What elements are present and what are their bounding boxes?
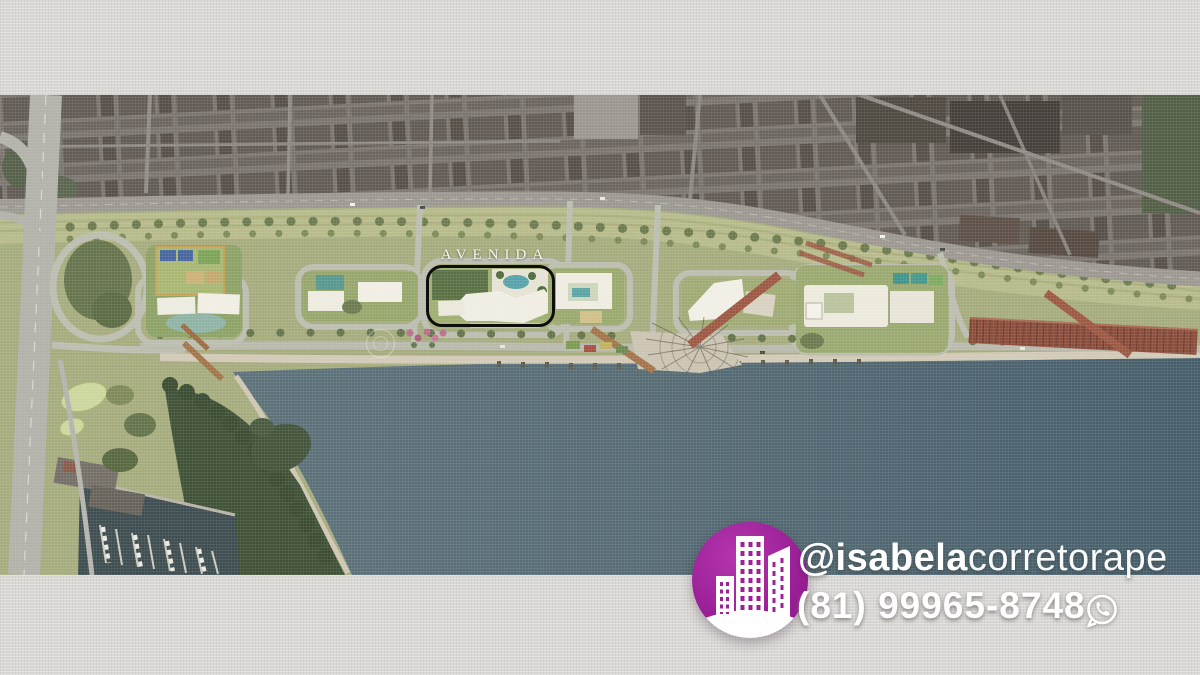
buildings-icon bbox=[692, 522, 808, 638]
aerial-map bbox=[0, 95, 1200, 575]
realtor-logo[interactable] bbox=[692, 522, 808, 638]
phone-number[interactable]: (81) 99965-8748 bbox=[797, 585, 1086, 627]
project-label: AVENIDA bbox=[420, 247, 570, 264]
building-cluster-east bbox=[796, 265, 948, 353]
site-highlight-outline bbox=[426, 265, 555, 327]
handle-bold-part: @isabela bbox=[798, 537, 968, 579]
watermark-logo bbox=[366, 329, 395, 358]
building-cluster-west bbox=[146, 245, 242, 349]
handle-light-part: corretorape bbox=[968, 537, 1168, 579]
aerial-photo bbox=[0, 95, 1200, 575]
building-cluster-midwest bbox=[302, 271, 418, 321]
marketing-image: AVENIDA @isabelacorretorape (81) 99965-8… bbox=[0, 0, 1200, 675]
building-cluster-center bbox=[548, 268, 624, 324]
instagram-handle[interactable]: @isabelacorretorape bbox=[798, 537, 1168, 580]
whatsapp-icon[interactable] bbox=[1082, 591, 1122, 631]
